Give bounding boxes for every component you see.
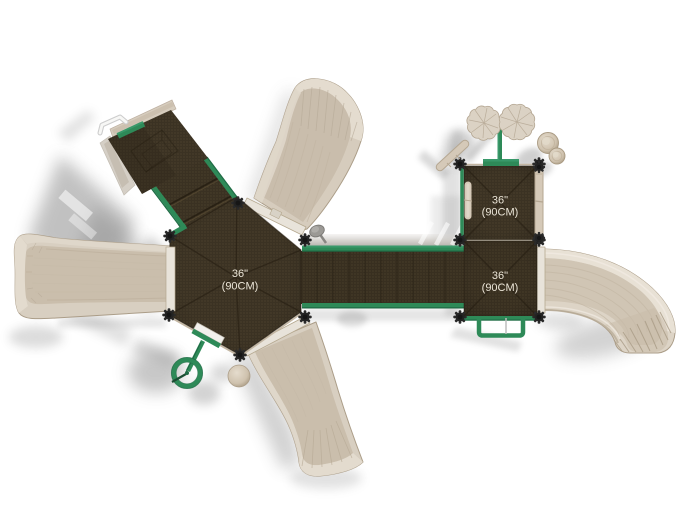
svg-text:36": 36" [232,268,248,280]
svg-text:36": 36" [492,270,508,282]
svg-text:(90CM): (90CM) [482,207,519,219]
svg-text:(90CM): (90CM) [222,281,259,293]
svg-text:36": 36" [492,195,508,207]
svg-text:(90CM): (90CM) [482,282,519,294]
